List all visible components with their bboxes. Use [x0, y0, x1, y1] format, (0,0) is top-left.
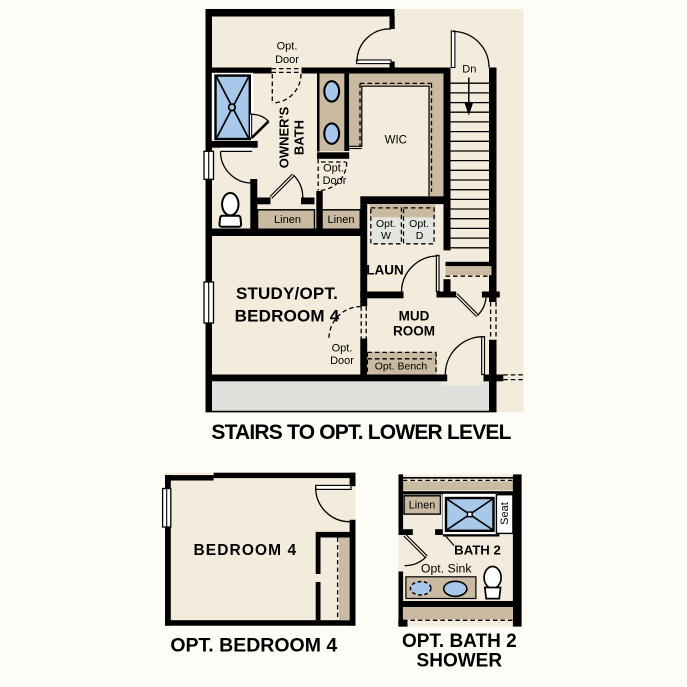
svg-text:Opt. Bench: Opt. Bench: [375, 361, 428, 373]
svg-text:Door: Door: [275, 54, 299, 66]
svg-text:BATH 2: BATH 2: [454, 542, 501, 557]
svg-text:MUD: MUD: [399, 309, 430, 324]
svg-text:Opt.: Opt.: [409, 218, 429, 230]
svg-text:Door: Door: [330, 355, 354, 367]
svg-text:BEDROOM 4: BEDROOM 4: [235, 307, 340, 326]
svg-text:Opt.: Opt.: [277, 41, 298, 53]
svg-text:Door: Door: [323, 175, 347, 187]
svg-text:BATH: BATH: [292, 120, 307, 155]
svg-text:STAIRS TO OPT. LOWER LEVEL: STAIRS TO OPT. LOWER LEVEL: [211, 421, 511, 444]
svg-text:SHOWER: SHOWER: [417, 650, 503, 671]
svg-text:Opt.: Opt.: [323, 163, 344, 175]
svg-text:OPT. BATH 2: OPT. BATH 2: [402, 631, 517, 652]
svg-text:Opt.: Opt.: [332, 343, 353, 355]
svg-text:Linen: Linen: [328, 214, 355, 226]
svg-text:Linen: Linen: [274, 214, 301, 226]
svg-text:WIC: WIC: [385, 135, 407, 147]
svg-text:BEDROOM 4: BEDROOM 4: [194, 542, 298, 559]
svg-text:Linen: Linen: [409, 499, 435, 511]
svg-text:ROOM: ROOM: [393, 324, 435, 339]
svg-text:Opt. Sink: Opt. Sink: [421, 561, 472, 575]
svg-text:LAUN: LAUN: [366, 262, 404, 277]
svg-text:Dn: Dn: [462, 64, 476, 76]
svg-text:Seat: Seat: [499, 502, 511, 525]
svg-text:W: W: [381, 230, 391, 242]
svg-text:OPT. BEDROOM 4: OPT. BEDROOM 4: [170, 635, 337, 657]
svg-text:Opt.: Opt.: [376, 218, 396, 230]
svg-text:OWNER'S: OWNER'S: [277, 106, 292, 168]
svg-text:D: D: [416, 230, 424, 242]
svg-text:STUDY/OPT.: STUDY/OPT.: [236, 284, 338, 303]
